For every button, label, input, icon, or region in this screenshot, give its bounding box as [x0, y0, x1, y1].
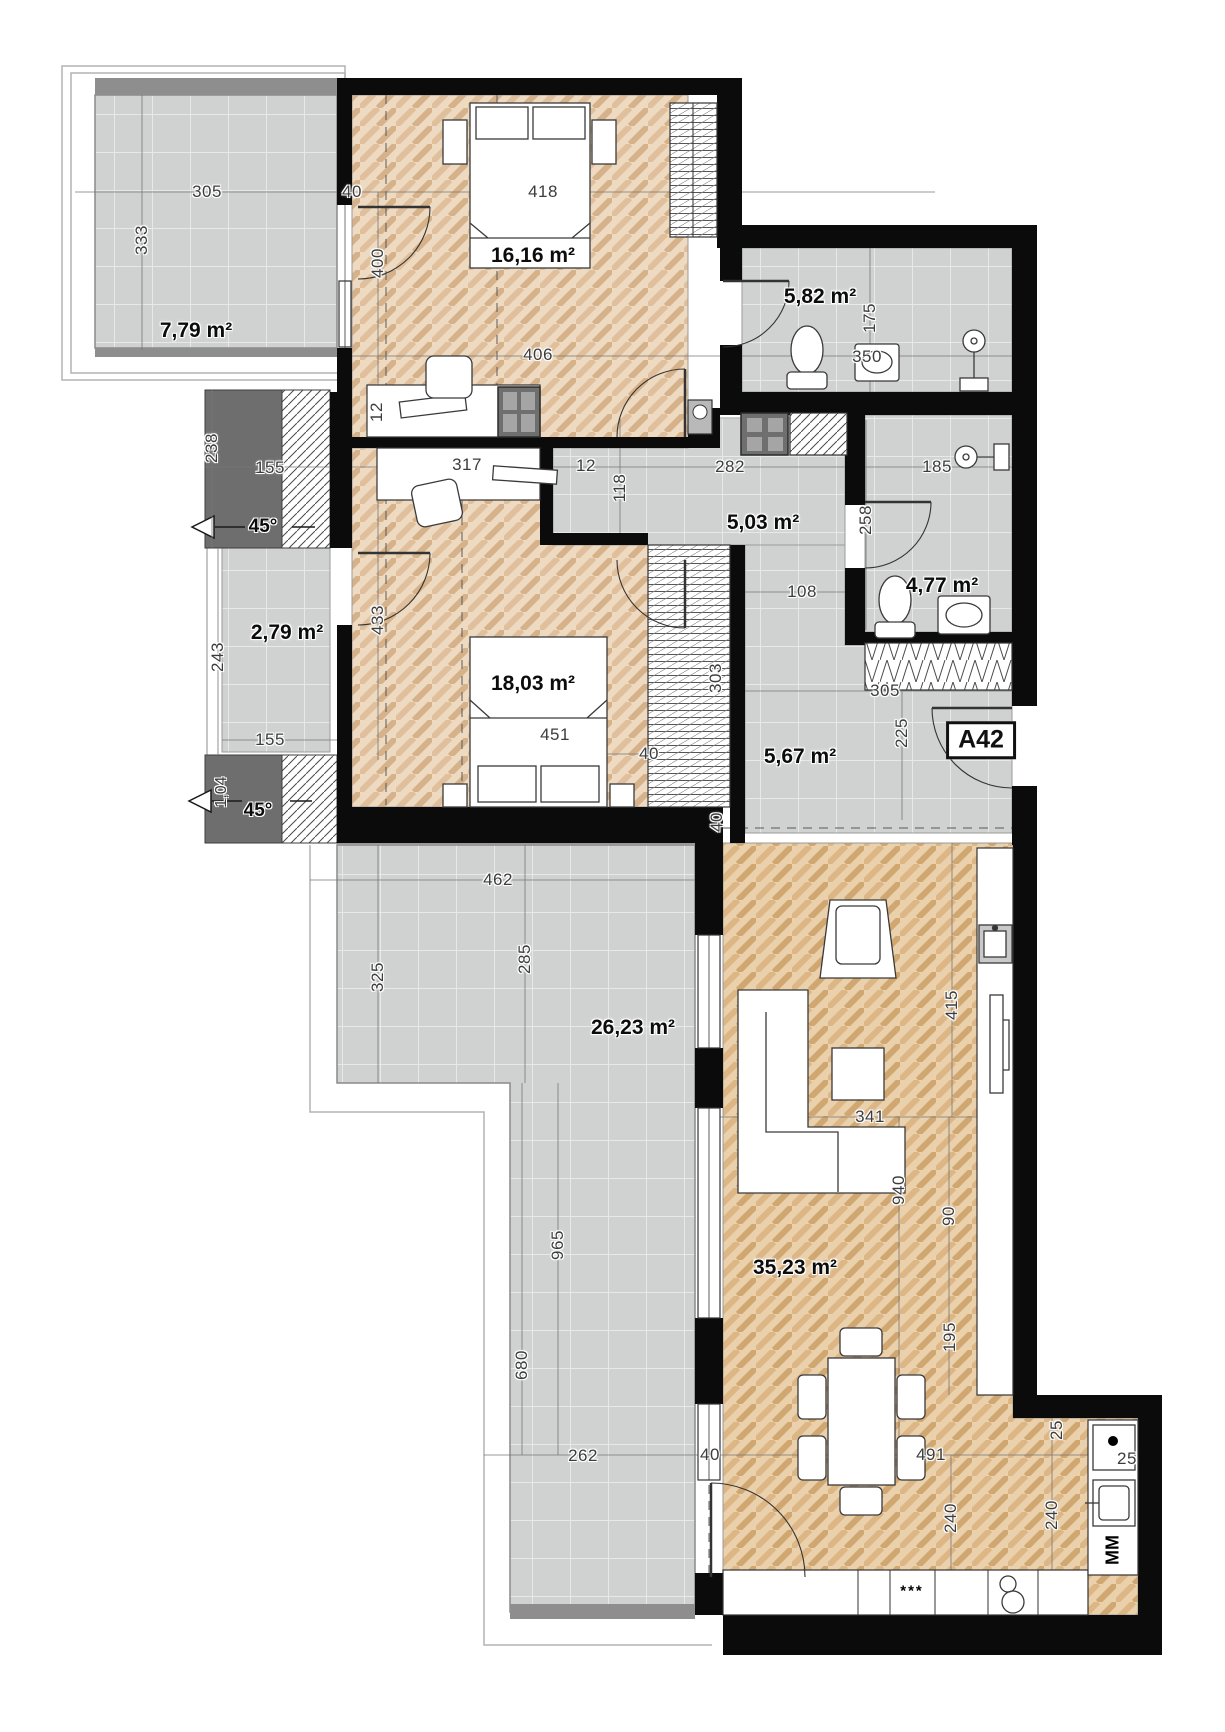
floor-plan: 7,79 m²16,16 m²5,82 m²5,03 m²4,77 m²2,79… — [0, 0, 1225, 1732]
unit-number-badge: A42 — [946, 721, 1016, 759]
floor-plan-graphic — [0, 0, 1225, 1732]
